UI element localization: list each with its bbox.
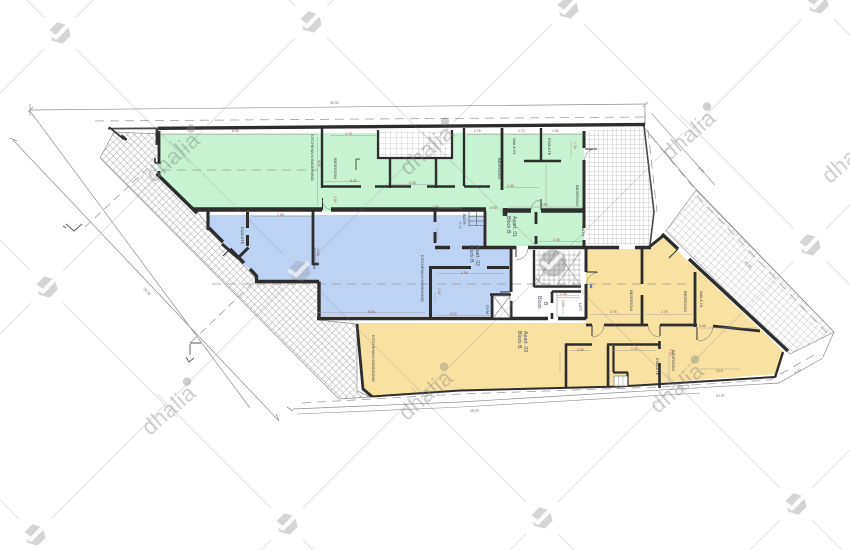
svg-text:1.90: 1.90	[437, 288, 441, 295]
svg-text:1.40: 1.40	[560, 292, 567, 296]
svg-text:2.75: 2.75	[474, 129, 481, 133]
svg-text:54.91: 54.91	[716, 394, 725, 398]
svg-text:12.9: 12.9	[716, 369, 723, 373]
svg-text:Block: Block	[536, 296, 542, 309]
svg-text:1.00: 1.00	[561, 300, 565, 307]
svg-text:30.91: 30.91	[330, 101, 339, 105]
svg-text:45.93: 45.93	[470, 409, 479, 413]
svg-text:2.40: 2.40	[507, 184, 514, 188]
svg-text:LIFT: LIFT	[578, 303, 583, 312]
svg-text:1.90: 1.90	[333, 196, 337, 203]
svg-text:BEDROOM: BEDROOM	[497, 158, 502, 179]
svg-text:KITCHEN/LIVING/DINING: KITCHEN/LIVING/DINING	[310, 134, 315, 181]
svg-text:BEDROOM: BEDROOM	[629, 290, 634, 311]
svg-text:2.75: 2.75	[345, 132, 352, 136]
svg-text:1.72: 1.72	[518, 129, 525, 133]
svg-text:B: B	[542, 302, 548, 306]
svg-text:5.20: 5.20	[450, 312, 457, 316]
svg-text:1.90: 1.90	[432, 205, 439, 209]
svg-text:3.90: 3.90	[541, 203, 548, 207]
svg-text:BEDROOM: BEDROOM	[683, 291, 688, 312]
svg-text:Apart. 03: Apart. 03	[522, 331, 528, 352]
svg-text:2.75: 2.75	[610, 310, 617, 314]
svg-text:2.16: 2.16	[458, 222, 462, 229]
svg-text:8.93: 8.93	[232, 129, 239, 133]
svg-text:KITCHEN/LIVING/DINING: KITCHEN/LIVING/DINING	[420, 255, 425, 302]
svg-text:3.20: 3.20	[669, 349, 673, 356]
svg-text:2.40: 2.40	[553, 238, 560, 242]
svg-text:Apart. 02: Apart. 02	[474, 245, 480, 266]
svg-text:BEDROOM: BEDROOM	[333, 158, 338, 179]
svg-text:BEDROOM: BEDROOM	[575, 185, 580, 206]
svg-text:4.46: 4.46	[699, 324, 706, 328]
svg-text:GYM: GYM	[485, 305, 490, 314]
svg-text:4.06: 4.06	[461, 271, 468, 275]
svg-text:WALK IN: WALK IN	[699, 291, 704, 307]
svg-text:1.16: 1.16	[573, 142, 577, 149]
svg-text:ENSUITE: ENSUITE	[240, 227, 245, 245]
svg-text:ENSUITE: ENSUITE	[547, 138, 552, 156]
svg-text:1.80: 1.80	[552, 129, 559, 133]
svg-text:BATH: BATH	[606, 371, 611, 381]
svg-text:5.40: 5.40	[350, 179, 357, 183]
svg-text:4.05: 4.05	[317, 160, 321, 167]
svg-text:WASH: WASH	[434, 170, 439, 182]
svg-text:2.30: 2.30	[409, 181, 416, 185]
svg-text:2.75: 2.75	[661, 310, 668, 314]
svg-text:5.60: 5.60	[368, 310, 375, 314]
svg-text:7.96: 7.96	[277, 213, 284, 217]
svg-text:2.40: 2.40	[631, 347, 638, 351]
svg-text:Block B: Block B	[468, 245, 474, 263]
svg-text:0.90: 0.90	[490, 206, 497, 210]
svg-text:Block B: Block B	[516, 331, 522, 349]
svg-text:2.05: 2.05	[577, 348, 584, 352]
svg-text:WALK IN: WALK IN	[512, 138, 517, 154]
